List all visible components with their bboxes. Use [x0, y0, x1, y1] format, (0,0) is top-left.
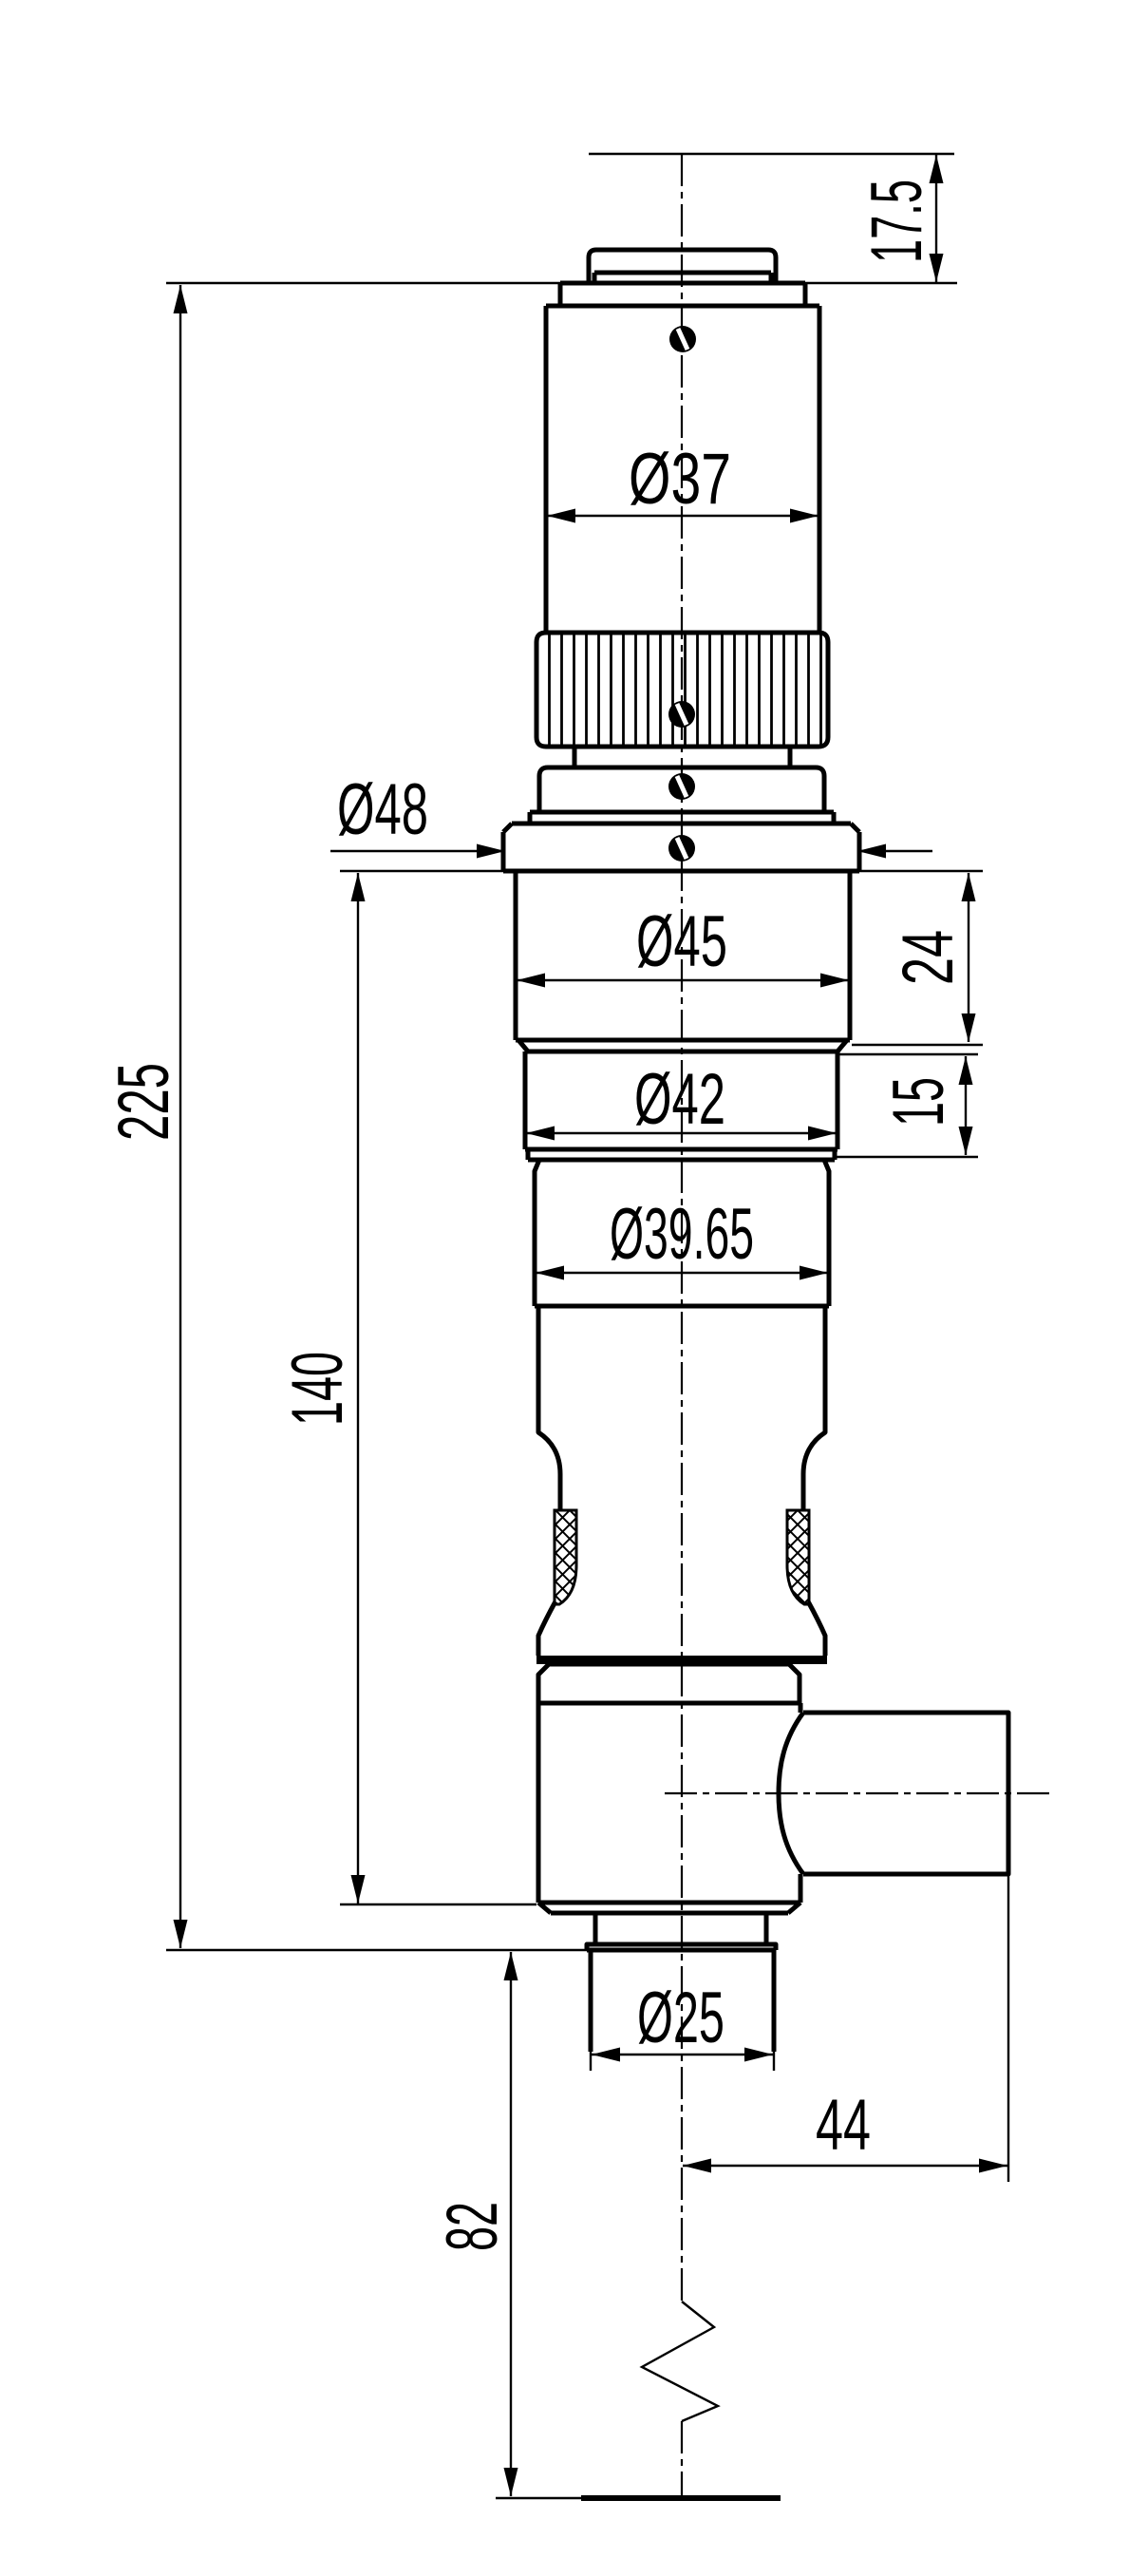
dim-label-overall-length: 225 [104, 1063, 184, 1141]
dim-label-bottom-extension: 82 [432, 2202, 513, 2251]
dimension-lower-assembly-length: 140 [277, 873, 366, 1904]
set-screw-icon [668, 701, 695, 728]
drawing-canvas: 17.5 Ø37 Ø48 Ø45 24 Ø42 15 [0, 0, 1148, 2576]
dim-label-section45-length: 24 [888, 930, 969, 985]
dimension-bottom-extension: 82 [432, 1952, 518, 2496]
chamfer-ring [538, 1664, 800, 1703]
dimension-upper-body-diameter: Ø37 [547, 439, 819, 523]
technical-drawing: 17.5 Ø37 Ø48 Ø45 24 Ø42 15 [0, 0, 1148, 2576]
dimension-overall-length: 225 [104, 285, 188, 1948]
dim-label-flange-diameter: Ø48 [337, 769, 428, 850]
dim-label-upper-body-diameter: Ø37 [629, 439, 731, 520]
break-symbol [642, 2301, 718, 2421]
dim-label-section45-diameter: Ø45 [636, 901, 727, 982]
dimension-section45-diameter: Ø45 [517, 901, 849, 988]
set-screw-icon [669, 326, 696, 352]
lower-body [538, 1703, 800, 1913]
dimension-section42-length: 15 [878, 1056, 973, 1155]
grip-pad-left [555, 1510, 576, 1604]
dim-label-section42-diameter: Ø42 [634, 1059, 725, 1140]
dimension-top-offset: 17.5 [856, 155, 944, 282]
dim-label-side-port-offset: 44 [816, 2085, 871, 2166]
set-screw-icon [668, 773, 695, 800]
set-screw-icon [668, 835, 695, 862]
dimension-nose-diameter: Ø25 [592, 1978, 773, 2062]
knurled-ring [536, 633, 828, 747]
dim-label-section42-length: 15 [878, 1077, 959, 1127]
dim-label-lower-assembly-length: 140 [277, 1352, 358, 1426]
dim-label-section3965-diameter: Ø39.65 [610, 1194, 754, 1275]
dim-label-top-offset: 17.5 [856, 180, 937, 263]
grip-pad-right [787, 1510, 809, 1604]
dim-label-nose-diameter: Ø25 [637, 1978, 725, 2058]
dimension-section45-length: 24 [888, 873, 976, 1042]
dimension-section3965-diameter: Ø39.65 [536, 1194, 828, 1280]
dimension-side-port-offset: 44 [683, 2085, 1007, 2173]
dimension-section42-diameter: Ø42 [526, 1059, 837, 1141]
